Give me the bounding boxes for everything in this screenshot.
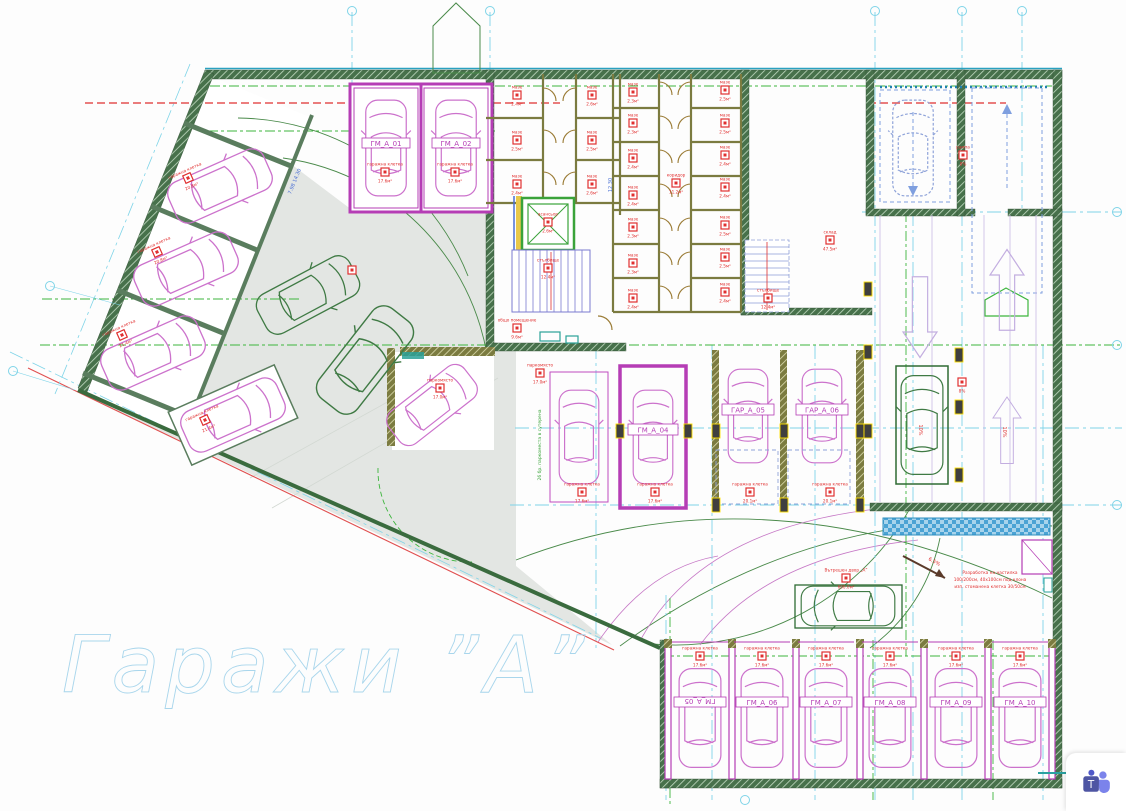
marker-room-name: коридор	[667, 173, 686, 178]
room-area-marker: мазе2.4м²	[511, 85, 523, 107]
marker-room-area: 2.4м²	[627, 305, 639, 310]
marker-room-area: 17.6м²	[378, 179, 392, 184]
column-marker	[780, 424, 788, 438]
marker-room-name: стълбище	[537, 258, 560, 263]
marker-room-area: 2.4м²	[719, 162, 731, 167]
marker-room-area: 2.5м²	[719, 130, 731, 135]
svg-text:T: T	[1087, 779, 1095, 791]
marker-room-area: 17.6м²	[883, 663, 897, 668]
room-area-marker: мазе2.5м²	[511, 130, 523, 152]
marker-room-area: 17.0м²	[433, 395, 447, 400]
door-swing	[659, 218, 672, 231]
marker-room-name: гаражна клетка	[437, 162, 473, 167]
door-swing	[678, 150, 691, 163]
parked-car	[800, 669, 851, 768]
door-swing	[659, 286, 672, 299]
structural-columns	[616, 282, 963, 512]
marker-room-name: рампа	[956, 145, 970, 150]
column-marker	[856, 498, 864, 512]
marker-room-name: мазе	[512, 85, 523, 90]
marker-room-area: 17.6м²	[575, 499, 589, 504]
wall-stub	[792, 639, 800, 648]
marker-room-area: 8%	[960, 162, 967, 167]
room-area-marker: мазе2.5м²	[719, 215, 731, 237]
door-swing	[659, 82, 672, 95]
garage-label: ГМ_А_05	[684, 697, 715, 705]
garage-label-box: ГМ_А_09	[930, 697, 982, 707]
door-swing	[678, 116, 691, 129]
marker-room-area: 2.4м²	[627, 165, 639, 170]
marker-room-area: 17.6м²	[819, 663, 833, 668]
marker-room-name: мазе	[720, 247, 731, 252]
marker-room-name: мазе	[720, 282, 731, 287]
marker-room-area: 11.2м²	[669, 190, 683, 195]
marker-room-name: мазе	[587, 85, 598, 90]
room-area-marker: мазе2.6м²	[586, 85, 598, 107]
garage-divider-wall	[1049, 642, 1055, 779]
column-marker	[955, 348, 963, 362]
marker-room-name: мазе	[720, 80, 731, 85]
room-area-marker: гаражна клетка20.1м²	[732, 482, 768, 504]
column-marker	[712, 424, 720, 438]
room-area-marker: мазе2.4м²	[719, 145, 731, 167]
teams-icon: T	[1081, 767, 1111, 797]
marker-room-name: общо помещение	[498, 318, 537, 323]
construction-note: изп. стоманена клетка 30/50см	[954, 584, 1025, 590]
marker-room-area: 20.1м²	[743, 499, 757, 504]
grid-bubble	[741, 796, 750, 805]
marker-room-area: 2.5м²	[511, 147, 523, 152]
storage-block-a	[486, 74, 620, 215]
marker-room-name: мазе	[720, 215, 731, 220]
garage-divider-wall	[857, 642, 863, 779]
garage-label-box: ГМ_А_05	[674, 697, 726, 707]
marker-room-area: 8%	[959, 389, 966, 394]
room-area-marker: гаражна клетка17.6м²	[637, 482, 673, 504]
door-swing	[678, 252, 691, 265]
garage-label: ГАР_А_05	[731, 407, 765, 415]
marker-room-name: гаражна клетка	[872, 646, 908, 651]
garage-divider-wall	[665, 642, 671, 779]
garage-label: ГАР_А_06	[805, 407, 840, 415]
column-marker	[864, 345, 872, 359]
marker-room-name: мазе	[587, 130, 598, 135]
door-swing	[659, 116, 672, 129]
shaft	[1022, 540, 1052, 592]
garage-divider-wall	[921, 642, 927, 779]
room-area-marker: склад47.5м²	[823, 230, 837, 252]
door-swing	[543, 88, 556, 101]
marker-room-area: 17.6м²	[648, 499, 662, 504]
marker-room-area: 17.6м²	[1013, 663, 1027, 668]
column-marker	[864, 282, 872, 296]
door-swing	[678, 218, 691, 231]
column-marker	[955, 468, 963, 482]
marker-room-area: 2.3м²	[627, 130, 639, 135]
marker-room-name: мазе	[628, 288, 639, 293]
marker-room-name: гаражна клетка	[812, 482, 848, 487]
marker-room-area: 2.5м²	[586, 147, 598, 152]
room-area-marker: гаражна клетка17.6м²	[1002, 646, 1038, 668]
room-area-marker: гаражна клетка17.6м²	[682, 646, 718, 668]
marker-room-area: 17.6м²	[949, 663, 963, 668]
room-area-marker: 8%	[958, 378, 966, 394]
room-area-marker: гаражна клетка17.6м²	[808, 646, 844, 668]
room-area-marker: гаражна клетка17.6м²	[744, 646, 780, 668]
door-swing	[659, 150, 672, 163]
marker-room-area: 2.4м²	[719, 194, 731, 199]
room-area-marker: гаражна клетка17.6м²	[564, 482, 600, 504]
slope-label: 6.5%	[927, 556, 941, 567]
courtyard: 6.5%	[795, 556, 945, 630]
room-area-marker: мазе2.4м²	[511, 174, 523, 196]
room-area-marker: общо помещение9.6м²	[498, 318, 537, 340]
column-marker	[955, 400, 963, 414]
garage-label: ГМ_А_02	[440, 140, 471, 148]
entrance-arrow	[433, 3, 480, 73]
room-area-marker: паркомясто17.0м²	[527, 363, 553, 385]
room-area-marker: мазе2.3м²	[627, 217, 639, 239]
parked-car	[930, 669, 981, 768]
room-area-marker: мазе2.4м²	[627, 148, 639, 170]
marker-room-name: гаражна клетка	[367, 162, 403, 167]
construction-note: 100/200см, 40х100см под клона	[954, 577, 1027, 583]
marker-room-area: 20.1м²	[823, 499, 837, 504]
marker-room-name: мазе	[628, 148, 639, 153]
slope-note-left: 10%	[917, 424, 923, 435]
marker-room-area: 17.6м²	[755, 663, 769, 668]
garage-label-box: ГМ_А_07	[800, 697, 852, 707]
marker-room-area: 17.6м²	[693, 663, 707, 668]
room-area-marker: мазе2.4м²	[627, 288, 639, 310]
marker-room-name: гаражна клетка	[732, 482, 768, 487]
wall-stub	[664, 639, 672, 648]
wall-stub	[984, 639, 992, 648]
room-area-marker: гаражна клетка20.1м²	[812, 482, 848, 504]
door-swing	[563, 172, 576, 185]
parking-note: 26 бр. паркоместа в сутерена	[537, 409, 543, 480]
room-area-marker: гаражна клетка17.6м²	[938, 646, 974, 668]
parked-car	[674, 669, 725, 768]
garage-label: ГМ_А_07	[810, 699, 841, 707]
room-area-marker: мазе2.3м²	[627, 113, 639, 135]
door-swing	[543, 130, 556, 143]
column-marker	[712, 498, 720, 512]
wall-stub	[920, 639, 928, 648]
marker-room-name: гаражна клетка	[1002, 646, 1038, 651]
marker-room-name: мазе	[628, 113, 639, 118]
marker-room-name: мазе	[628, 185, 639, 190]
parked-car	[736, 669, 787, 768]
parked-car	[864, 669, 915, 768]
marker-room-name: мазе	[628, 253, 639, 258]
marker-room-area: 2.5м²	[719, 97, 731, 102]
room-area-marker: мазе2.5м²	[586, 130, 598, 152]
marker-room-name: гаражна клетка	[744, 646, 780, 651]
column-marker	[864, 424, 872, 438]
garage-label: ГМ_А_04	[637, 427, 669, 435]
column-marker	[856, 424, 864, 438]
marker-room-area: 2.4м²	[511, 191, 523, 196]
garage-label-box: ГМ_А_06	[736, 697, 788, 707]
room-area-marker	[348, 266, 356, 274]
room-area-marker: мазе2.6м²	[586, 174, 598, 196]
marker-room-area: 2.3м²	[627, 270, 639, 275]
wall-stub	[856, 639, 864, 648]
marker-room-name: гаражна клетка	[637, 482, 673, 487]
construction-note: Разработка на настилка	[962, 570, 1017, 576]
marker-room-area: 2.5м²	[719, 232, 731, 237]
marker-room-name: асансьор	[538, 212, 559, 217]
marker-room-area: 2.3м²	[627, 234, 639, 239]
dim-text: 12.30	[608, 178, 614, 192]
garage-label: ГМ_А_01	[370, 140, 401, 148]
marker-room-area: 17.0м²	[533, 380, 547, 385]
teams-line	[1038, 772, 1066, 774]
marker-room-area: 12.4м²	[761, 305, 775, 310]
door-swing	[659, 252, 672, 265]
marker-room-name: мазе	[512, 130, 523, 135]
marker-room-name: мазе	[720, 145, 731, 150]
door-swing	[678, 286, 691, 299]
marker-room-area: 17.6м²	[448, 179, 462, 184]
marker-room-name: Вътрешен двор „А”	[824, 568, 867, 573]
marker-room-name: мазе	[628, 82, 639, 87]
marker-room-name: паркомясто	[527, 363, 553, 368]
marker-room-name: склад	[824, 230, 837, 235]
column-marker	[780, 498, 788, 512]
column-marker	[616, 424, 624, 438]
room-area-marker: мазе2.4м²	[719, 282, 731, 304]
marker-room-name: мазе	[587, 174, 598, 179]
marker-room-area: 47.5м²	[823, 247, 837, 252]
room-area-marker: мазе2.5м²	[719, 113, 731, 135]
column-marker	[684, 424, 692, 438]
room-area-marker: мазе2.4м²	[719, 177, 731, 199]
marker-room-name: мазе	[512, 174, 523, 179]
marker-room-area: 2.6м²	[586, 191, 598, 196]
marker-room-area: 2.6м²	[586, 102, 598, 107]
marker-room-name: гаражна клетка	[682, 646, 718, 651]
wall-stub	[728, 639, 736, 648]
bottom-garage-row: ГМ_А_05ГМ_А_06ГМ_А_07ГМ_А_08ГМ_А_09ГМ_А_…	[664, 639, 1056, 779]
plan-title: Гаражи ”А”	[62, 621, 591, 711]
door-swing	[563, 88, 576, 101]
marker-room-area: 9.6м²	[511, 335, 523, 340]
turning-arcs-magenta	[598, 506, 918, 645]
marker-room-area: 600.0м²	[838, 585, 855, 590]
marker-room-area: 2.6м²	[542, 229, 554, 234]
garage-label-box: ГМ_А_08	[864, 697, 916, 707]
marker-room-name: мазе	[720, 177, 731, 182]
garage-divider-wall	[793, 642, 799, 779]
garage-label: ГМ_А_06	[746, 699, 778, 707]
marker-room-name: гаражна клетка	[564, 482, 600, 487]
marker-room-name: стълбище	[757, 288, 780, 293]
wall-stub	[1048, 639, 1056, 648]
drainage-grate	[883, 518, 1050, 535]
garage-label: ГМ_А_10	[1004, 699, 1035, 707]
room-area-marker: гаражна клетка17.6м²	[872, 646, 908, 668]
room-area-marker: мазе2.3м²	[627, 253, 639, 275]
parked-car	[994, 669, 1045, 768]
marker-room-area: 2.3м²	[627, 99, 639, 104]
room-area-marker: мазе2.5м²	[719, 247, 731, 269]
room-area-marker: мазе2.5м²	[719, 80, 731, 102]
marker-room-name: гаражна клетка	[808, 646, 844, 651]
lobby-fixtures	[540, 316, 612, 343]
floor-plan-page: { "title": "Гаражи ”А”", "labels": { "to…	[0, 0, 1126, 811]
garage-floor-plan: ГМ_А_01 ГМ_А_02	[0, 0, 1126, 811]
marker-room-area: 2.4м²	[627, 202, 639, 207]
marker-room-name: паркомясто	[427, 378, 453, 383]
teams-widget[interactable]: T	[1066, 753, 1126, 811]
door-swing	[543, 172, 556, 185]
room-area-marker: коридор11.2м²	[667, 173, 686, 195]
marker-room-name: гаражна клетка	[938, 646, 974, 651]
garage-divider-wall	[985, 642, 991, 779]
top-garages: ГМ_А_01 ГМ_А_02	[350, 84, 492, 212]
marker-room-area: 2.4м²	[511, 102, 523, 107]
marker-room-name: мазе	[720, 113, 731, 118]
marker-room-area: 2.4м²	[719, 299, 731, 304]
slope-note-right: 10%	[1001, 426, 1007, 437]
room-area-marker: мазе2.3м²	[627, 82, 639, 104]
garage-divider-wall	[729, 642, 735, 779]
garage-label: ГМ_А_09	[940, 699, 971, 707]
door-swing	[563, 130, 576, 143]
marker-room-area: 2.5м²	[719, 264, 731, 269]
door-swing	[678, 82, 691, 95]
marker-room-name: мазе	[628, 217, 639, 222]
marker-room-area: 12.4м²	[541, 275, 555, 280]
garage-label: ГМ_А_08	[874, 699, 905, 707]
garage-label-box: ГМ_А_10	[994, 697, 1046, 707]
room-area-marker: мазе2.4м²	[627, 185, 639, 207]
